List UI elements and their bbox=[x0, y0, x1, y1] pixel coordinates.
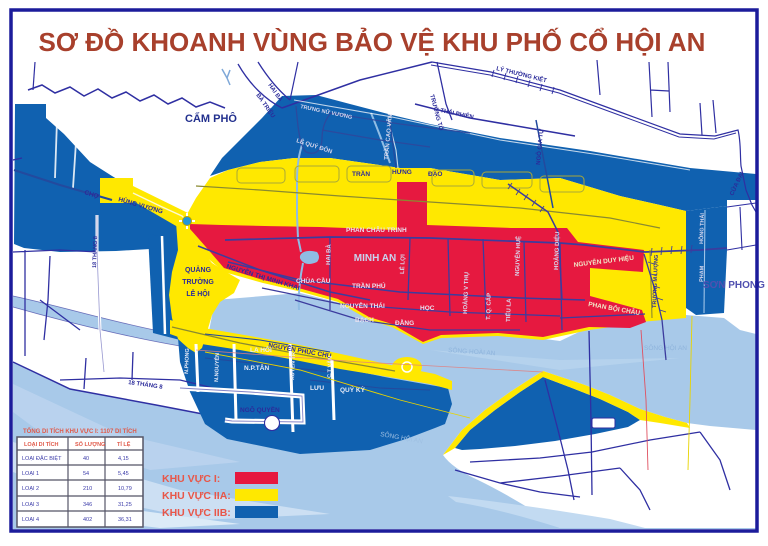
svg-text:4,15: 4,15 bbox=[118, 456, 129, 462]
svg-text:18 THÁNG 8: 18 THÁNG 8 bbox=[91, 236, 99, 268]
svg-text:LOẠI 2: LOẠI 2 bbox=[22, 486, 39, 492]
svg-text:SƠ ĐỒ KHOANH VÙNG BẢO VỆ KHU P: SƠ ĐỒ KHOANH VÙNG BẢO VỆ KHU PHỐ CỔ HỘI … bbox=[39, 27, 706, 57]
svg-text:346: 346 bbox=[83, 502, 92, 508]
svg-text:QUẢNG: QUẢNG bbox=[185, 265, 212, 274]
svg-text:C.T VĂN: C.T VĂN bbox=[326, 356, 334, 378]
svg-text:BẠCH: BẠCH bbox=[355, 317, 374, 324]
svg-text:NGUYỄN THÁI: NGUYỄN THÁI bbox=[340, 301, 385, 310]
svg-text:SÔNG HỘI AN: SÔNG HỘI AN bbox=[644, 343, 687, 352]
svg-text:T. Q. CẤP: T. Q. CẤP bbox=[485, 293, 493, 320]
svg-text:36,31: 36,31 bbox=[118, 517, 132, 523]
svg-text:CẨM PHÔ: CẨM PHÔ bbox=[185, 112, 237, 125]
svg-text:PHAN CHÂU TRINH: PHAN CHÂU TRINH bbox=[346, 225, 407, 234]
svg-text:HOÀNG V THỤ: HOÀNG V THỤ bbox=[462, 272, 470, 314]
svg-text:HỌC: HỌC bbox=[420, 305, 435, 312]
svg-text:PHẠM: PHẠM bbox=[699, 265, 706, 282]
svg-text:KHU VỰC IIA:: KHU VỰC IIA: bbox=[162, 490, 231, 502]
svg-text:LOẠI DI TÍCH: LOẠI DI TÍCH bbox=[24, 440, 59, 448]
svg-text:402: 402 bbox=[83, 517, 92, 523]
svg-text:KHU VỰC IIB:: KHU VỰC IIB: bbox=[162, 507, 231, 519]
svg-text:KHU VỰC I:: KHU VỰC I: bbox=[162, 473, 220, 485]
svg-text:TỔNG DI TÍCH KHU VỰC I: 1107 D: TỔNG DI TÍCH KHU VỰC I: 1107 DI TÍCH bbox=[23, 427, 137, 435]
svg-text:31,25: 31,25 bbox=[118, 502, 132, 508]
svg-text:40: 40 bbox=[83, 456, 89, 462]
svg-text:210: 210 bbox=[83, 486, 92, 492]
svg-text:54: 54 bbox=[83, 471, 89, 477]
svg-text:TRƯỜNG: TRƯỜNG bbox=[182, 277, 214, 286]
svg-text:ĐẰNG: ĐẰNG bbox=[395, 318, 414, 327]
svg-text:ĐẠO: ĐẠO bbox=[428, 171, 442, 178]
svg-text:N.PHONG: N.PHONG bbox=[184, 348, 191, 374]
svg-text:SỐ LƯỢNG: SỐ LƯỢNG bbox=[75, 441, 105, 448]
svg-text:MINH AN: MINH AN bbox=[354, 253, 396, 264]
svg-text:LOẠI ĐẶC BIỆT: LOẠI ĐẶC BIỆT bbox=[22, 454, 62, 462]
svg-text:HƯNG: HƯNG bbox=[392, 169, 412, 176]
svg-text:QUÝ KỲ: QUÝ KỲ bbox=[340, 385, 366, 394]
svg-text:HỒNG THÁI: HỒNG THÁI bbox=[698, 213, 706, 245]
svg-text:N.P.TÂN: N.P.TÂN bbox=[244, 363, 269, 372]
svg-text:TỈ LỆ: TỈ LỆ bbox=[117, 440, 131, 448]
svg-text:10,79: 10,79 bbox=[118, 486, 132, 492]
svg-text:TIỂU LA: TIỂU LA bbox=[505, 298, 513, 322]
svg-text:LOẠI 4: LOẠI 4 bbox=[22, 517, 39, 523]
svg-text:LỄ HỘI: LỄ HỘI bbox=[186, 289, 209, 298]
svg-text:5,45: 5,45 bbox=[118, 471, 129, 477]
svg-text:N.NGUYỄN: N.NGUYỄN bbox=[213, 353, 221, 382]
svg-text:LOẠI 3: LOẠI 3 bbox=[22, 502, 39, 508]
svg-text:LƯU: LƯU bbox=[310, 385, 324, 392]
svg-text:HAI BÀ: HAI BÀ bbox=[325, 244, 333, 266]
svg-text:LOẠI 1: LOẠI 1 bbox=[22, 471, 39, 477]
